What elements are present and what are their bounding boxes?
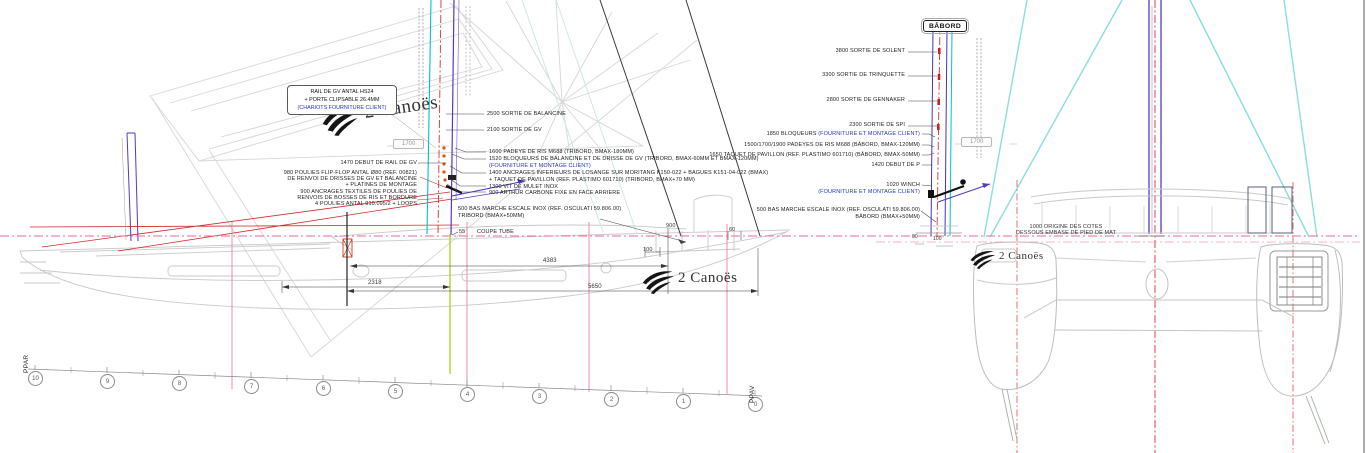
label-bloqueurs-babord-note: (FOURNITURE ET MONTAGE CLIENT) xyxy=(818,131,920,137)
dim-2318: 2318 xyxy=(368,280,382,286)
label-bloqueurs-tribord-note: (FOURNITURE ET MONTAGE CLIENT) xyxy=(489,163,591,169)
label-ancrages-losange-1: 1400 ANCRAGES INFERIEURS DE LOSANGE SUR … xyxy=(489,170,768,176)
dim-60: 60 xyxy=(729,227,735,233)
label-rail-start: 1470 DEBUT DE RAIL DE GV xyxy=(340,160,417,166)
dim-1700-right: 1700 xyxy=(961,137,992,147)
station-10: 10 xyxy=(28,371,43,386)
label-debut-p: 1420 DEBUT DE P xyxy=(872,162,920,168)
logo-text: 2 Canoës xyxy=(999,250,1044,262)
purple-post xyxy=(122,133,138,241)
label-sortie-solent: 3800 SORTIE DE SOLENT xyxy=(836,48,905,54)
logo-2canoes-center: 2 Canoës xyxy=(641,270,737,294)
label-bas-marche-babord-2: BÂBORD (BMAX+50MM) xyxy=(855,214,920,220)
station-5: 5 xyxy=(388,384,403,399)
label-ppar: PPAR xyxy=(23,355,30,373)
rail-gv-note-box: RAIL DE GV ANTAL HS24 + PORTE CLIPSABLE … xyxy=(287,85,397,115)
label-ancrages-3: 4 POULIES ANTAL 910.095/2 + LOOPS xyxy=(315,201,417,207)
logo-text: 2 Canoës xyxy=(678,270,737,287)
origin-note-line2: DESSOUS EMBASE DE PIED DE MAT xyxy=(990,230,1142,236)
label-bas-marche-babord-1: 500 BAS MARCHE ESCALE INOX (REF. OSCULAT… xyxy=(757,207,920,213)
label-sortie-gv: 2100 SORTIE DE GV xyxy=(487,127,542,133)
babord-mast xyxy=(916,22,990,237)
label-sortie-spi: 2300 SORTIE DE SPI xyxy=(849,122,905,128)
label-sortie-balancine: 2500 SORTIE DE BALANCINE xyxy=(487,111,566,117)
catamaran-rigging-drawing: RAIL DE GV ANTAL HS24 + PORTE CLIPSABLE … xyxy=(0,0,1367,453)
dim-1700-left: 1700 xyxy=(393,139,424,149)
label-bloqueurs-babord-text: 1850 BLOQUEURS xyxy=(767,131,817,137)
dimension-lines xyxy=(282,228,953,296)
drawing-linework xyxy=(0,0,1367,453)
dim-100: 100 xyxy=(643,247,652,253)
logo-swoosh-icon xyxy=(641,270,675,294)
station-3: 3 xyxy=(532,389,547,404)
station-6: 6 xyxy=(316,381,331,396)
rail-box-line3: (CHARIOTS FOURNITURE CLIENT) xyxy=(289,104,395,112)
label-bloqueurs-babord: 1850 BLOQUEURS (FOURNITURE ET MONTAGE CL… xyxy=(767,131,920,137)
rail-box-line1: RAIL DE GV ANTAL HS24 xyxy=(289,88,395,96)
station-7: 7 xyxy=(244,379,259,394)
label-winch: 1020 WINCH xyxy=(886,182,920,188)
label-taquet-babord: 1650 TAQUET DE PAVILLON (REF. PLASTIMO 6… xyxy=(709,152,920,158)
station-8: 8 xyxy=(172,376,187,391)
label-arthur: 900 ARTHUR CARBONE FIXE EN FACE ARRIERE xyxy=(489,190,620,196)
dim-100b: 100 xyxy=(933,236,942,242)
label-coupe-tube: COUPE TUBE xyxy=(477,229,514,235)
logo-swoosh-icon xyxy=(969,250,996,269)
dim-5650: 5650 xyxy=(588,284,602,290)
dim-55: 55 xyxy=(459,229,465,235)
label-poulies-3: + PLATINES DE MONTAGE xyxy=(345,182,417,188)
label-bas-marche-tribord-2: TRIBORD (BMAX+50MM) xyxy=(458,213,524,219)
rail-box-line2: + PORTE CLIPSABLE 26.4MM xyxy=(289,96,395,104)
station-4: 4 xyxy=(460,387,475,402)
label-winch-note: (FOURNITURE ET MONTAGE CLIENT) xyxy=(818,189,920,195)
label-bas-marche-tribord-1: 500 BAS MARCHE ESCALE INOX (REF. OSCULAT… xyxy=(458,206,621,212)
dim-80: 80 xyxy=(912,234,918,240)
label-sortie-gennaker: 2800 SORTIE DE GENNAKER xyxy=(827,97,905,103)
dim-4383: 4383 xyxy=(543,258,557,264)
label-ppav: PPAV xyxy=(749,385,756,403)
station-vertical-lines xyxy=(232,222,727,394)
station-1: 1 xyxy=(676,394,691,409)
logo-2canoes-right: 2 Canoës xyxy=(969,250,1044,269)
label-sortie-trinquette: 3300 SORTIE DE TRINQUETTE xyxy=(822,72,905,78)
label-padeye-tribord: 1600 PADEYE DE RIS M688 (TRIBORD, BMAX-1… xyxy=(489,149,634,155)
dim-900: 900 xyxy=(666,223,675,229)
station-9: 9 xyxy=(100,374,115,389)
runner-lines xyxy=(600,0,760,236)
label-ancrages-losange-2: + TAQUET DE PAVILLON (REF. PLASTIMO 6017… xyxy=(489,177,695,183)
babord-title-box: BÂBORD xyxy=(923,20,967,32)
station-2: 2 xyxy=(604,392,619,407)
label-padeyes-babord: 1500/1700/1900 PADEYES DE RIS M688 (BÂBO… xyxy=(744,142,920,148)
origin-note: 1000 ORIGINE DES COTES DESSOUS EMBASE DE… xyxy=(990,224,1142,237)
